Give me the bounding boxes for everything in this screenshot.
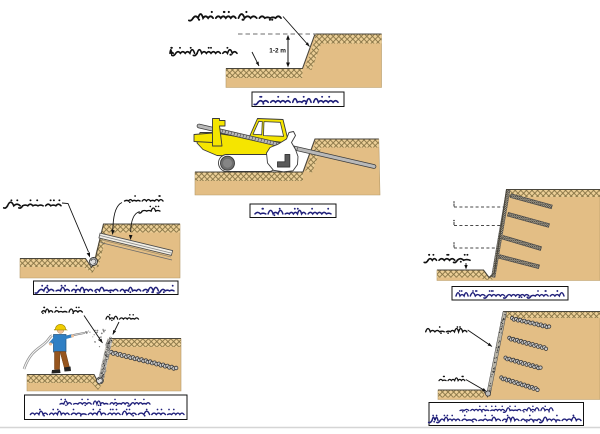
svg-text:1-2 m: 1-2 m bbox=[269, 48, 286, 55]
